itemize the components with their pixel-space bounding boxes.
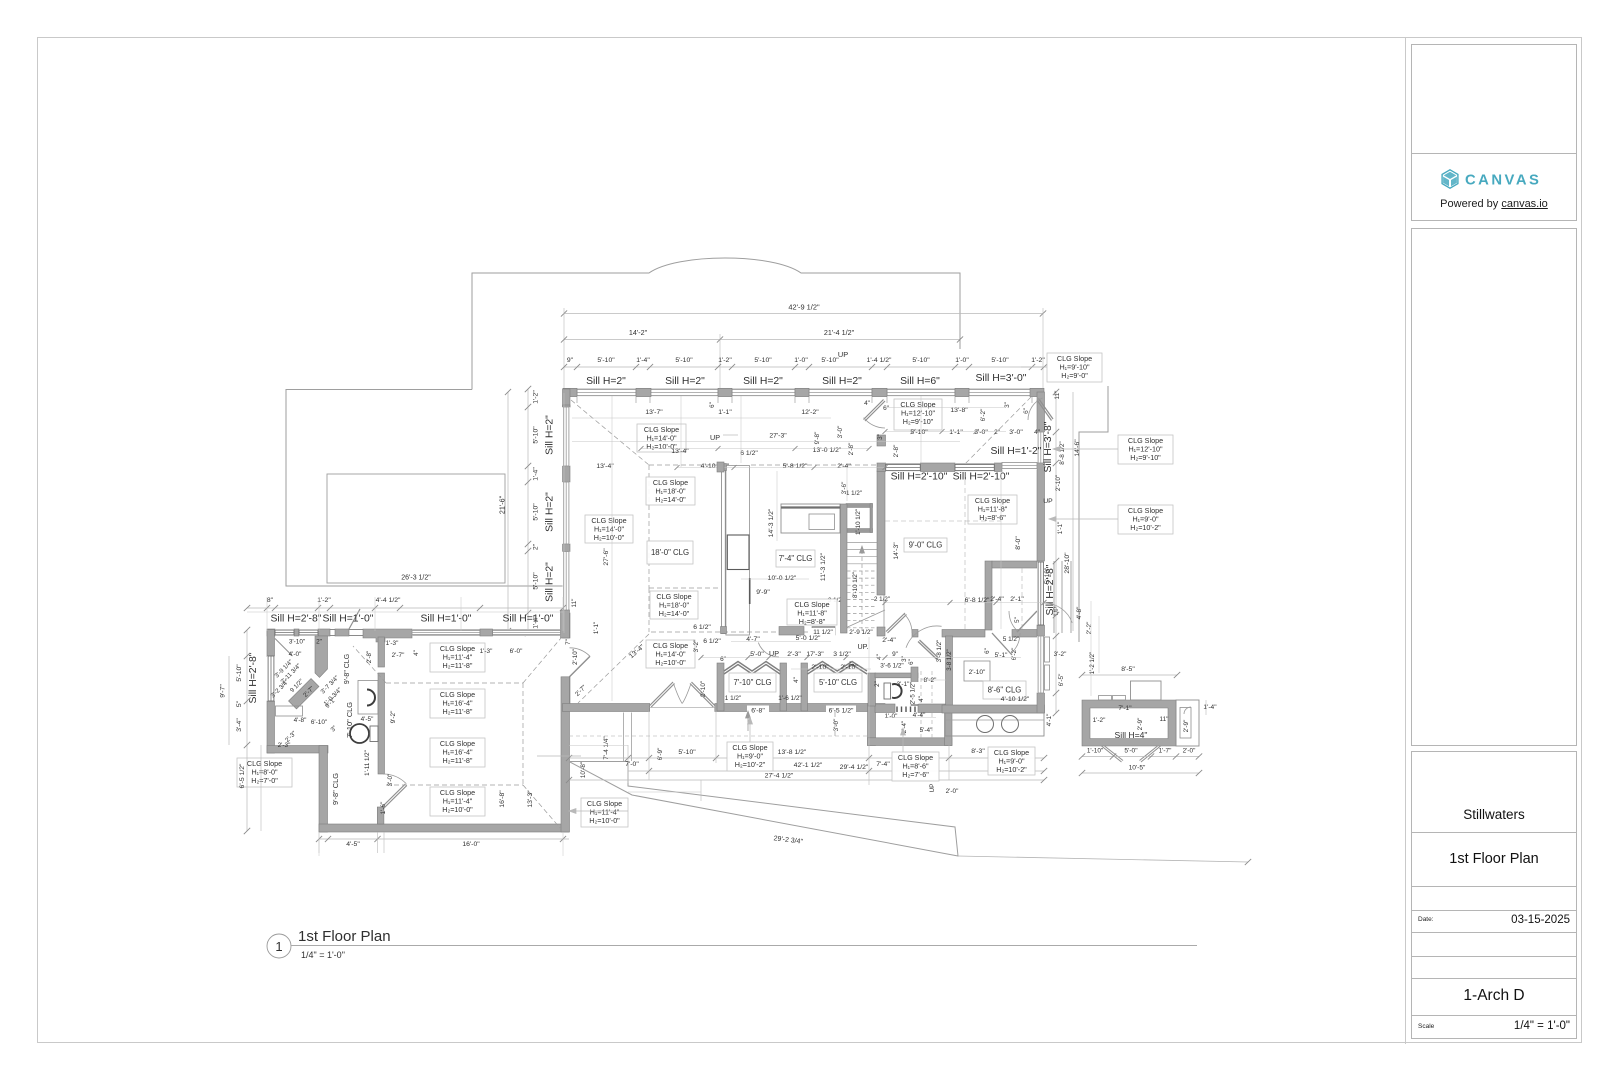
svg-text:9'-9": 9'-9" [756, 589, 770, 596]
svg-text:2'-10": 2'-10" [811, 664, 829, 671]
svg-text:5'-10": 5'-10" [236, 664, 243, 682]
svg-text:13'-3": 13'-3" [527, 790, 534, 808]
svg-text:8'-10 1/2": 8'-10 1/2" [852, 572, 859, 598]
svg-text:H₂=11'-8": H₂=11'-8" [443, 756, 473, 765]
svg-text:3'-10": 3'-10" [289, 639, 305, 646]
svg-text:Sill H=2'-8": Sill H=2'-8" [270, 614, 321, 625]
svg-text:2'-4": 2'-4" [882, 637, 896, 644]
svg-text:5'-10": 5'-10" [754, 357, 772, 364]
svg-text:4": 4" [864, 400, 870, 407]
svg-text:1'-0": 1'-0" [794, 357, 808, 364]
svg-text:5'-0 1/2": 5'-0 1/2" [796, 635, 821, 642]
svg-text:3'-6 1/2": 3'-6 1/2" [880, 663, 903, 670]
svg-text:1: 1 [275, 939, 282, 954]
svg-text:2": 2" [316, 639, 322, 646]
svg-text:5'-10": 5'-10" [1044, 568, 1051, 584]
svg-text:10'-0 1/2": 10'-0 1/2" [768, 575, 797, 582]
svg-text:2'-5 1/2": 2'-5 1/2" [910, 682, 917, 705]
svg-text:H₂=7'-6": H₂=7'-6" [902, 770, 929, 779]
svg-text:2 1/2": 2 1/2" [874, 596, 890, 603]
svg-text:1'-4 1/2": 1'-4 1/2" [867, 357, 892, 364]
svg-text:5'-10": 5'-10" [533, 426, 540, 444]
svg-text:9'-8" CLG: 9'-8" CLG [331, 773, 340, 805]
svg-text:4'-5": 4'-5" [346, 841, 360, 848]
svg-text:8'-6" CLG: 8'-6" CLG [988, 686, 1022, 695]
svg-text:9": 9" [892, 651, 898, 658]
svg-text:10'-5": 10'-5" [1129, 765, 1146, 772]
svg-text:4": 4" [918, 696, 925, 702]
svg-text:1'-0": 1'-0" [955, 357, 969, 364]
svg-text:4'-5": 4'-5" [361, 716, 374, 723]
svg-text:3'-1": 3'-1" [897, 681, 910, 688]
svg-text:3'-0": 3'-0" [833, 719, 840, 732]
svg-text:1'-0": 1'-0" [885, 713, 898, 720]
svg-text:Sill H=2": Sill H=2" [586, 376, 626, 387]
svg-text:1 1/2": 1 1/2" [846, 490, 862, 497]
svg-text:5'-0": 5'-0" [1124, 748, 1138, 755]
svg-text:2": 2" [994, 429, 1000, 436]
svg-text:4'-10 1/2": 4'-10 1/2" [1001, 696, 1030, 703]
svg-text:3'-4": 3'-4" [236, 718, 243, 732]
svg-text:11": 11" [1054, 391, 1061, 400]
svg-text:14'-3 1/2": 14'-3 1/2" [768, 508, 775, 537]
svg-text:4": 4" [1034, 429, 1040, 436]
svg-text:Sill H=2": Sill H=2" [545, 562, 556, 602]
svg-text:5'-10": 5'-10" [533, 503, 540, 521]
svg-text:3": 3" [1004, 402, 1011, 408]
svg-text:17'-3": 17'-3" [806, 651, 824, 658]
svg-text:4'-4": 4'-4" [913, 712, 926, 719]
svg-text:1'-6 1/2": 1'-6 1/2" [778, 695, 801, 702]
svg-text:2'-4": 2'-4" [990, 596, 1004, 603]
svg-text:27'-4 1/2": 27'-4 1/2" [765, 773, 794, 780]
svg-text:7'-10" CLG: 7'-10" CLG [345, 702, 354, 738]
svg-text:26'-3 1/2": 26'-3 1/2" [401, 575, 431, 582]
svg-text:1'-4": 1'-4" [1203, 704, 1217, 711]
svg-text:6": 6" [908, 659, 915, 665]
svg-text:H₂=9'-10": H₂=9'-10" [1130, 453, 1161, 462]
svg-text:4'-7": 4'-7" [746, 636, 760, 643]
svg-text:29'-4 1/2": 29'-4 1/2" [840, 764, 869, 771]
svg-text:3": 3" [901, 656, 908, 662]
svg-text:Sill H=2": Sill H=2" [545, 415, 556, 455]
svg-text:3": 3" [877, 434, 884, 440]
svg-text:1'-7": 1'-7" [1159, 748, 1172, 755]
svg-text:11": 11" [1160, 716, 1169, 723]
svg-text:9'-0" CLG: 9'-0" CLG [909, 541, 943, 550]
svg-text:7'-4 1/4": 7'-4 1/4" [603, 736, 610, 759]
svg-text:2'-9 1/2": 2'-9 1/2" [849, 629, 872, 636]
svg-text:6'-5": 6'-5" [1058, 674, 1065, 687]
svg-text:5": 5" [236, 700, 243, 707]
svg-text:Sill H=1'-0": Sill H=1'-0" [502, 614, 553, 625]
svg-text:1'-1": 1'-1" [718, 409, 732, 416]
svg-text:2'-9": 2'-9" [1183, 720, 1190, 733]
svg-text:10'-8": 10'-8" [580, 762, 587, 778]
svg-text:1'-1": 1'-1" [949, 429, 963, 436]
svg-text:14'-6": 14'-6" [1074, 439, 1081, 457]
svg-text:6": 6" [1023, 408, 1030, 414]
svg-text:4'-8": 4'-8" [1076, 607, 1083, 620]
svg-text:7'-1": 7'-1" [1118, 705, 1132, 712]
svg-text:Sill H=1'-0": Sill H=1'-0" [420, 614, 471, 625]
svg-text:1'-3": 1'-3" [386, 640, 399, 647]
svg-text:1'-4": 1'-4" [636, 357, 650, 364]
svg-text:UP: UP [929, 784, 936, 793]
svg-text:H₂=7'-0": H₂=7'-0" [251, 776, 278, 785]
svg-text:3 1/2": 3 1/2" [833, 651, 851, 658]
svg-text:3'-2": 3'-2" [1054, 651, 1067, 658]
svg-text:2": 2" [533, 543, 540, 550]
svg-text:Sill H=2": Sill H=2" [545, 492, 556, 532]
svg-text:1'-2": 1'-2" [718, 357, 732, 364]
svg-text:2'-10": 2'-10" [969, 669, 986, 676]
svg-text:2'-10": 2'-10" [572, 649, 579, 665]
svg-text:Sill H=1'-0": Sill H=1'-0" [322, 614, 373, 625]
svg-text:3-8 1/2": 3-8 1/2" [946, 649, 953, 670]
svg-text:1'-2": 1'-2" [1093, 717, 1106, 724]
svg-text:1'-4": 1'-4" [533, 467, 540, 481]
svg-text:Sill H=4": Sill H=4" [1115, 730, 1148, 740]
svg-text:27'-6": 27'-6" [603, 548, 610, 566]
svg-text:Sill H=6": Sill H=6" [900, 376, 940, 387]
svg-text:1'-2": 1'-2" [1031, 357, 1045, 364]
svg-text:H₂=8'-8": H₂=8'-8" [799, 617, 826, 626]
svg-text:2": 2" [874, 681, 881, 687]
svg-text:6'-8": 6'-8" [751, 708, 765, 715]
svg-text:16'-8": 16'-8" [499, 790, 506, 808]
svg-text:1'-1": 1'-1" [1057, 522, 1064, 535]
svg-text:5'-10": 5'-10" [678, 749, 696, 756]
svg-text:6'-0": 6'-0" [510, 648, 523, 655]
svg-text:H₂=14'-0": H₂=14'-0" [655, 495, 686, 504]
svg-text:8'-5": 8'-5" [1121, 666, 1135, 673]
svg-text:6": 6" [709, 402, 716, 408]
svg-text:2'-10": 2'-10" [1055, 475, 1062, 491]
svg-text:9'-8" CLG: 9'-8" CLG [344, 654, 351, 684]
svg-text:13'-7": 13'-7" [645, 409, 663, 416]
svg-text:2'-0": 2'-0" [946, 788, 959, 795]
svg-text:Sill H=2": Sill H=2" [665, 376, 705, 387]
svg-text:4'-1": 4'-1" [1046, 714, 1053, 727]
svg-text:1'-2": 1'-2" [533, 390, 540, 404]
svg-text:2'-10": 2'-10" [700, 681, 707, 697]
svg-text:5": 5" [1014, 617, 1021, 623]
svg-text:8'-8 1/2": 8'-8 1/2" [1059, 441, 1066, 464]
svg-text:42'-9 1/2": 42'-9 1/2" [788, 303, 820, 312]
svg-text:18'-0" CLG: 18'-0" CLG [651, 548, 689, 557]
svg-text:7'-4" CLG: 7'-4" CLG [779, 554, 813, 563]
svg-text:5'-4": 5'-4" [920, 727, 933, 734]
svg-text:9'-8": 9'-8" [814, 432, 821, 445]
svg-text:6": 6" [883, 405, 889, 412]
svg-text:14'-2": 14'-2" [629, 328, 648, 337]
svg-text:3'-0": 3'-0" [1009, 429, 1023, 436]
svg-text:H₂=10'-2": H₂=10'-2" [735, 760, 766, 769]
svg-text:5 1/2": 5 1/2" [1003, 636, 1019, 643]
svg-text:4'-8": 4'-8" [294, 717, 307, 724]
svg-text:3'-2": 3'-2" [693, 640, 700, 653]
svg-text:8'-3": 8'-3" [971, 748, 985, 755]
svg-text:9": 9" [567, 357, 574, 364]
svg-text:8": 8" [267, 597, 274, 604]
svg-text:2'-8": 2'-8" [893, 445, 900, 458]
svg-text:13'-8": 13'-8" [950, 407, 968, 414]
svg-text:Sill H=2": Sill H=2" [822, 376, 862, 387]
svg-text:5'-10": 5'-10" [912, 357, 930, 364]
svg-text:1/4" = 1'-0": 1/4" = 1'-0" [301, 950, 345, 960]
svg-text:UP.: UP. [857, 642, 868, 651]
svg-text:H₂=11'-8": H₂=11'-8" [443, 661, 473, 670]
svg-text:14'-3": 14'-3" [893, 542, 900, 560]
svg-text:7'-0": 7'-0" [625, 761, 639, 768]
svg-text:21'-4 1/2": 21'-4 1/2" [824, 328, 855, 337]
svg-text:6 1/2": 6 1/2" [740, 450, 758, 457]
svg-text:5'-0": 5'-0" [750, 651, 764, 658]
svg-text:13'-8 1/2": 13'-8 1/2" [778, 749, 807, 756]
svg-text:28'-10": 28'-10" [1064, 552, 1071, 574]
svg-text:2'-9": 2'-9" [1137, 718, 1144, 731]
svg-text:H₂=10'-0": H₂=10'-0" [442, 805, 473, 814]
svg-text:8'-0": 8'-0" [1015, 536, 1022, 550]
svg-text:6 1/2": 6 1/2" [693, 624, 711, 631]
svg-text:5'-8 1/2": 5'-8 1/2" [783, 463, 808, 470]
svg-text:H₂=8'-6": H₂=8'-6" [979, 513, 1006, 522]
svg-text:12'-2": 12'-2" [801, 409, 819, 416]
svg-text:3'-0": 3'-0" [837, 426, 844, 439]
svg-text:6 1/2": 6 1/2" [703, 638, 721, 645]
svg-text:2'-8": 2'-8" [848, 443, 855, 456]
svg-text:21'-6": 21'-6" [498, 495, 507, 514]
svg-text:2'-1": 2'-1" [1010, 596, 1024, 603]
svg-text:6'-5 1/2": 6'-5 1/2" [829, 708, 854, 715]
svg-text:CANVAS: CANVAS [1465, 173, 1541, 189]
svg-text:2'-3": 2'-3" [278, 742, 291, 749]
svg-text:5'-10": 5'-10" [991, 357, 1009, 364]
svg-text:5'-10": 5'-10" [675, 357, 693, 364]
svg-text:13'-4": 13'-4" [596, 463, 614, 470]
svg-text:2'-3": 2'-3" [787, 651, 801, 658]
svg-text:7'-10" CLG: 7'-10" CLG [733, 678, 771, 687]
svg-text:UP: UP [769, 649, 779, 658]
svg-text:1'-10": 1'-10" [1087, 748, 1103, 755]
svg-text:6'-2": 6'-2" [980, 409, 987, 422]
svg-text:5'-10": 5'-10" [597, 357, 615, 364]
svg-text:4": 4" [876, 654, 883, 660]
svg-text:9'-7": 9'-7" [220, 684, 227, 698]
svg-text:H₂=11'-8": H₂=11'-8" [443, 707, 473, 716]
svg-text:11'-3 1/2": 11'-3 1/2" [820, 552, 827, 581]
svg-text:1'-3": 1'-3" [480, 648, 493, 655]
svg-text:6": 6" [720, 656, 726, 663]
svg-text:1'-6": 1'-6" [380, 802, 387, 815]
svg-text:Sill H=3'-0": Sill H=3'-0" [975, 373, 1026, 384]
svg-text:16'-0": 16'-0" [462, 841, 480, 848]
svg-text:1'-2 1/2": 1'-2 1/2" [1089, 652, 1096, 675]
svg-text:7": 7" [565, 639, 572, 645]
svg-text:6'-5 1/2": 6'-5 1/2" [239, 763, 246, 788]
svg-text:11": 11" [571, 599, 578, 608]
svg-text:4": 4" [413, 650, 420, 656]
svg-text:Sill H=2'-8": Sill H=2'-8" [248, 652, 259, 703]
svg-text:4": 4" [793, 677, 800, 683]
svg-text:UP: UP [710, 433, 720, 442]
svg-text:Sill H=3'-8": Sill H=3'-8" [1043, 421, 1054, 472]
svg-text:5'-10": 5'-10" [821, 357, 839, 364]
svg-text:H₂=10'-2": H₂=10'-2" [1130, 523, 1161, 532]
svg-text:1'-10 1/2": 1'-10 1/2" [855, 509, 862, 535]
svg-text:1'-11 1/2": 1'-11 1/2" [364, 750, 371, 776]
svg-text:3'-0": 3'-0" [974, 429, 988, 436]
svg-text:2'-4": 2'-4" [837, 463, 851, 470]
svg-text:3": 3" [849, 661, 856, 667]
svg-text:H₂=9'-0": H₂=9'-0" [1061, 371, 1088, 380]
svg-text:3'-0": 3'-0" [387, 774, 394, 787]
svg-text:1'-2": 1'-2" [317, 597, 331, 604]
svg-text:4'-0": 4'-0" [289, 651, 302, 658]
svg-text:Sill H=2": Sill H=2" [743, 376, 783, 387]
svg-text:H₂=10'-0": H₂=10'-0" [589, 816, 620, 825]
svg-text:5'-10": 5'-10" [533, 572, 540, 590]
svg-text:5'-1": 5'-1" [995, 652, 1008, 659]
svg-text:6": 6" [984, 648, 991, 654]
svg-text:Sill H=2'-10": Sill H=2'-10" [891, 472, 948, 483]
svg-text:13'-0 1/2": 13'-0 1/2" [813, 447, 842, 454]
svg-text:13'-4": 13'-4" [671, 448, 689, 455]
svg-text:3": 3" [329, 724, 338, 733]
svg-text:H₂=10'-0": H₂=10'-0" [594, 533, 625, 542]
svg-text:H₂=10'-0": H₂=10'-0" [655, 658, 686, 667]
svg-text:9'-2": 9'-2" [390, 711, 397, 724]
svg-text:2'-8": 2'-8" [366, 651, 373, 663]
svg-text:5'-10": 5'-10" [910, 429, 928, 436]
svg-text:H₂=9'-10": H₂=9'-10" [903, 417, 934, 426]
svg-text:H₂=14'-0": H₂=14'-0" [659, 609, 690, 618]
svg-text:4'-4 1/2": 4'-4 1/2" [376, 597, 401, 604]
svg-text:2'-2": 2'-2" [1086, 622, 1093, 635]
svg-text:6'-2": 6'-2" [1011, 648, 1018, 661]
svg-text:6'-9": 6'-9" [657, 748, 664, 761]
svg-text:6'-8 1/2": 6'-8 1/2" [965, 597, 990, 604]
svg-text:H₂=10'-2": H₂=10'-2" [996, 765, 1027, 774]
svg-text:1'-1": 1'-1" [593, 622, 600, 634]
svg-text:29'-2 3/4": 29'-2 3/4" [773, 835, 804, 846]
svg-text:27'-3": 27'-3" [769, 433, 787, 440]
svg-text:Sill H=1'-2": Sill H=1'-2" [990, 446, 1041, 457]
svg-text:1st Floor Plan: 1st Floor Plan [298, 928, 391, 945]
svg-text:6'-10": 6'-10" [311, 719, 327, 726]
svg-text:5'-10" CLG: 5'-10" CLG [819, 678, 857, 687]
svg-text:2'-7": 2'-7" [392, 652, 405, 659]
svg-text:2'-0": 2'-0" [1183, 748, 1196, 755]
svg-text:UP: UP [1043, 498, 1053, 505]
svg-text:UP: UP [838, 350, 848, 359]
svg-text:7'-4": 7'-4" [876, 761, 890, 768]
svg-text:8'-2": 8'-2" [924, 677, 937, 684]
svg-text:1 1/2": 1 1/2" [725, 695, 741, 702]
svg-text:42'-1 1/2": 42'-1 1/2" [794, 762, 823, 769]
svg-text:3'-8 1/2": 3'-8 1/2" [936, 640, 943, 663]
